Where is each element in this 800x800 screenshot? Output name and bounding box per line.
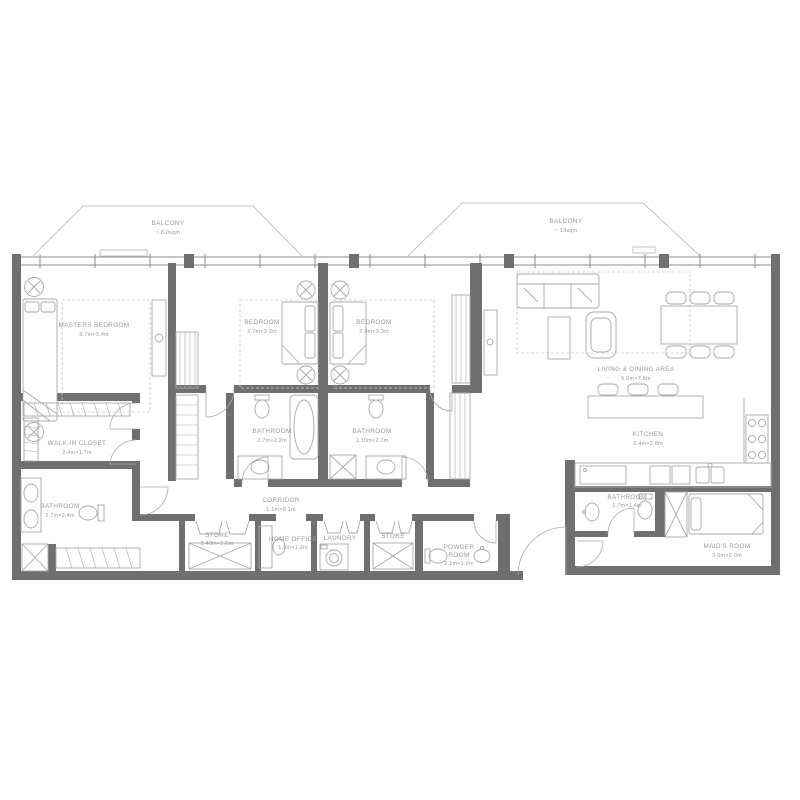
room-dims: 1.7m×1.4m (612, 503, 642, 509)
room-label: STORE (381, 533, 405, 540)
floor-plan-canvas: BALCONY ~ 8.0sqm BALCONY ~ 13sqm (0, 0, 800, 800)
room-dims: 1.10m×2.2m (356, 438, 389, 444)
room-label: MAID'S ROOM (704, 543, 751, 550)
room-label: BATHROOM (40, 503, 79, 510)
room-label: LAUNDRY (324, 535, 357, 542)
room-label: KITCHEN (633, 431, 664, 438)
room-dims: 3.0m×2.0m (712, 553, 742, 559)
room-dims: 3.9m×3.3m (359, 329, 389, 335)
room-dims: 2.7m×2.4m (45, 513, 75, 519)
balcony-right-area: ~ 13sqm (555, 228, 578, 234)
room-label: BATHROOM (252, 428, 291, 435)
room-dims: 5.0m×7.8m (621, 376, 651, 382)
bed-icon (689, 494, 763, 534)
room-label: BATHROOM (607, 494, 646, 501)
room-label-line2: ROOM (448, 552, 469, 559)
floor-plan-drawing: BALCONY ~ 8.0sqm BALCONY ~ 13sqm (0, 0, 800, 800)
room-dims: 3.7m×3.2m (247, 329, 277, 335)
room-dims: 1.1m×8.1m (266, 507, 296, 513)
room-label: BEDROOM (356, 319, 391, 326)
room-label: BEDROOM (244, 319, 279, 326)
balcony-left-label: BALCONY (152, 220, 185, 227)
balcony-right-label: BALCONY (550, 218, 583, 225)
room-label: STORE (205, 532, 229, 539)
balcony-left-area: ~ 8.0sqm (156, 230, 181, 236)
room-label: HOME OFFICE (269, 536, 317, 543)
room-dims: 2.4m×1.7m (62, 450, 92, 456)
room-dims: 3.7m×3.4m (79, 332, 109, 338)
room-label: WALK-IN CLOSET (48, 440, 107, 447)
room-label: CORRIDOR (262, 497, 300, 504)
room-dims: 2.1m×1.2m (444, 561, 474, 567)
room-label-line1: POWDER (444, 544, 475, 551)
room-dims: 2.7m×2.2m (257, 438, 287, 444)
bed-icon (282, 302, 318, 364)
room-dims: 2.40m×1.6m (201, 541, 234, 547)
room-label: LIVING & DINING AREA (598, 366, 675, 373)
room-dims: 2.4m×2.8m (633, 441, 663, 447)
room-label: MASTERS BEDROOM (59, 322, 130, 329)
room-dims: 1.5m×1.2m (278, 545, 308, 551)
room-label: BATHROOM (352, 428, 391, 435)
